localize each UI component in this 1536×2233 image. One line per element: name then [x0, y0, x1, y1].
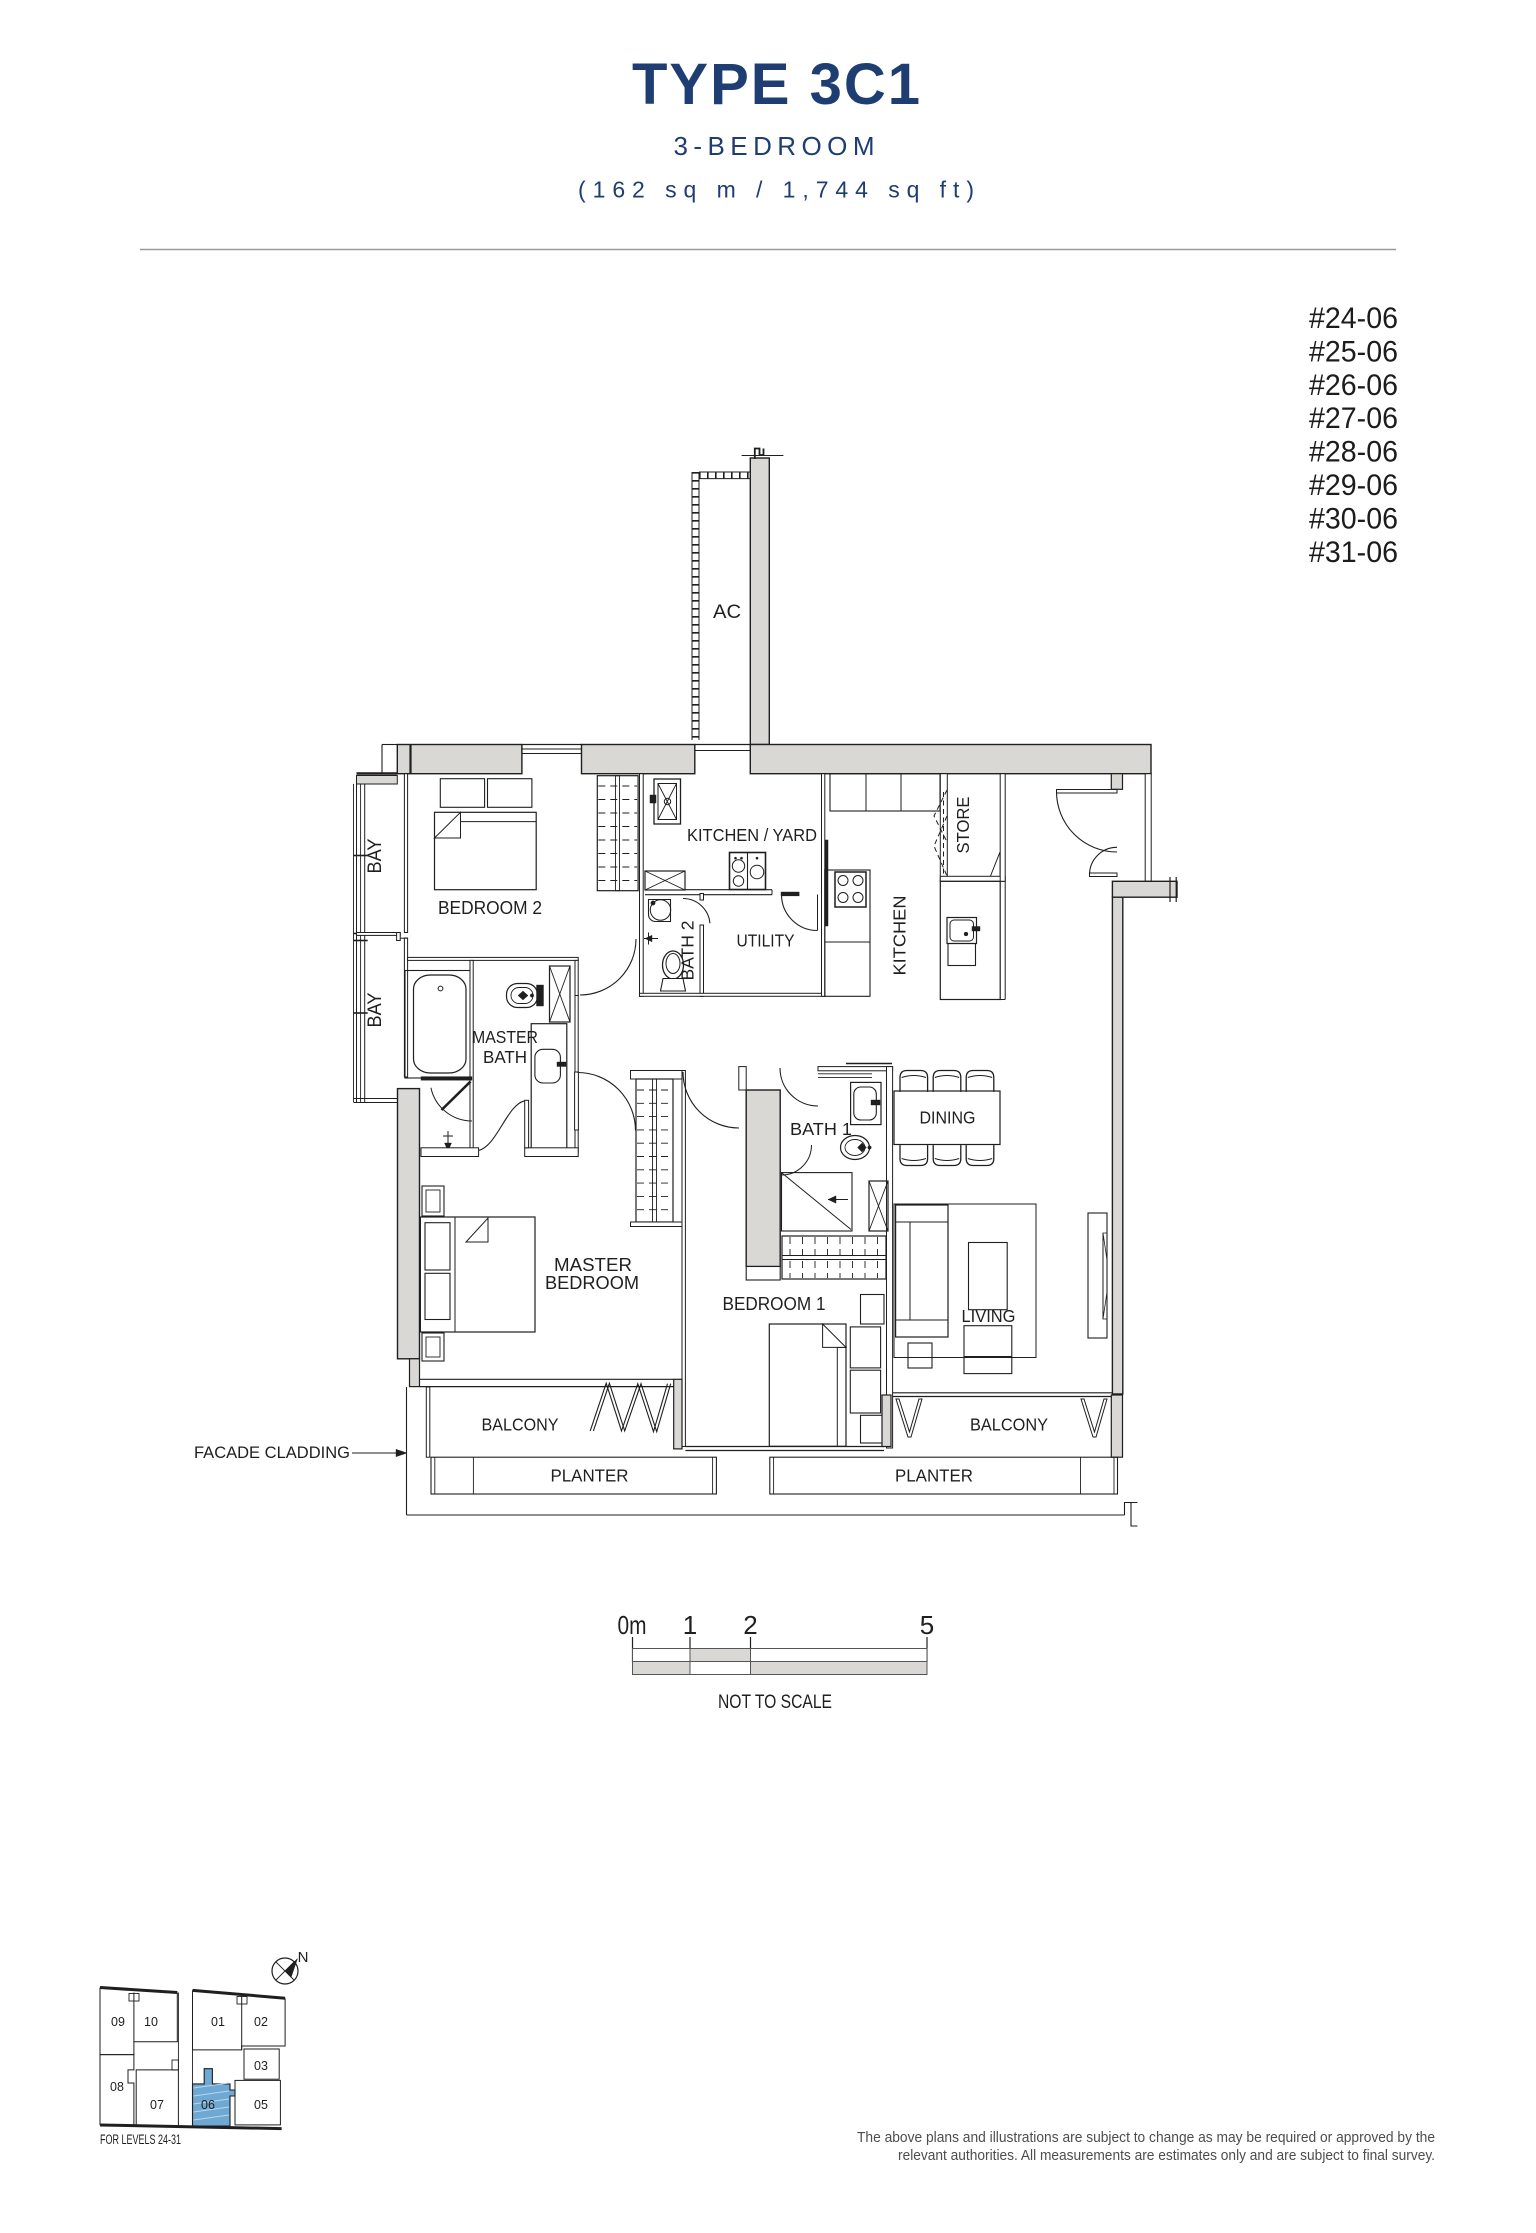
svg-text:07: 07	[150, 2098, 164, 2112]
svg-text:#29-06: #29-06	[1309, 469, 1398, 502]
svg-text:AC: AC	[713, 602, 741, 623]
svg-text:#30-06: #30-06	[1309, 502, 1398, 535]
svg-text:N: N	[298, 1949, 309, 1966]
svg-text:STORE: STORE	[953, 797, 973, 854]
svg-text:MASTER: MASTER	[554, 1255, 632, 1275]
svg-text:2: 2	[743, 1610, 757, 1640]
svg-text:#24-06: #24-06	[1309, 302, 1398, 335]
svg-text:UTILITY: UTILITY	[737, 931, 795, 951]
svg-text:PLANTER: PLANTER	[551, 1466, 629, 1486]
svg-text:BALCONY: BALCONY	[970, 1415, 1048, 1435]
svg-text:5: 5	[920, 1610, 934, 1640]
svg-text:BALCONY: BALCONY	[482, 1415, 559, 1435]
svg-text:BEDROOM 2: BEDROOM 2	[438, 898, 542, 918]
svg-text:KITCHEN: KITCHEN	[890, 896, 910, 976]
svg-text:#25-06: #25-06	[1309, 335, 1398, 368]
svg-text:02: 02	[254, 2015, 268, 2029]
svg-text:TYPE 3C1: TYPE 3C1	[632, 52, 920, 117]
svg-text:1: 1	[683, 1610, 697, 1640]
svg-text:#27-06: #27-06	[1309, 402, 1398, 435]
svg-text:10: 10	[144, 2015, 158, 2029]
svg-text:The above plans and illustrati: The above plans and illustrations are su…	[857, 2130, 1435, 2146]
svg-text:01: 01	[211, 2015, 225, 2029]
svg-text:#26-06: #26-06	[1309, 369, 1398, 402]
svg-text:#31-06: #31-06	[1309, 536, 1398, 569]
svg-text:05: 05	[254, 2098, 268, 2112]
svg-text:BAY: BAY	[365, 992, 386, 1027]
svg-text:#28-06: #28-06	[1309, 436, 1398, 469]
svg-text:0m: 0m	[618, 1610, 647, 1640]
svg-text:NOT TO SCALE: NOT TO SCALE	[718, 1692, 832, 1713]
svg-text:MASTER: MASTER	[472, 1027, 538, 1047]
svg-text:BATH 2: BATH 2	[678, 921, 698, 981]
svg-text:PLANTER: PLANTER	[895, 1466, 973, 1486]
svg-text:FACADE CLADDING: FACADE CLADDING	[194, 1444, 350, 1462]
svg-text:08: 08	[110, 2080, 124, 2094]
svg-text:03: 03	[254, 2059, 268, 2073]
svg-text:BATH 1: BATH 1	[790, 1119, 852, 1139]
svg-text:LIVING: LIVING	[962, 1306, 1016, 1326]
svg-text:relevant authorities. All meas: relevant authorities. All measurements a…	[898, 2148, 1435, 2164]
svg-text:BAY: BAY	[365, 838, 386, 873]
svg-text:BATH: BATH	[483, 1047, 527, 1067]
svg-text:BEDROOM: BEDROOM	[545, 1273, 639, 1293]
svg-text:DINING: DINING	[920, 1108, 976, 1128]
svg-text:BEDROOM 1: BEDROOM 1	[723, 1294, 826, 1314]
svg-text:FOR LEVELS 24-31: FOR LEVELS 24-31	[100, 2132, 181, 2147]
svg-text:09: 09	[111, 2015, 125, 2029]
svg-text:06: 06	[201, 2098, 215, 2112]
svg-text:KITCHEN / YARD: KITCHEN / YARD	[687, 825, 817, 845]
